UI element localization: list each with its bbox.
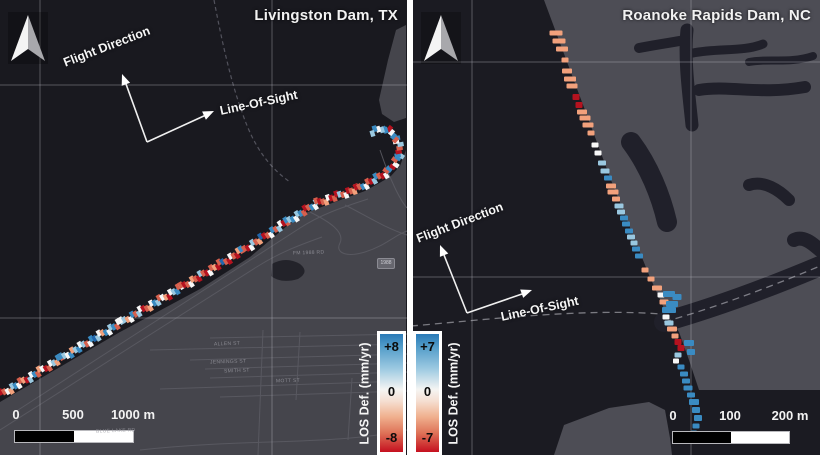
- insar-point: [595, 151, 602, 156]
- insar-point: [567, 84, 578, 89]
- panel-title: Roanoke Rapids Dam, NC: [622, 7, 811, 24]
- insar-point: [615, 204, 624, 209]
- insar-point: [627, 235, 635, 240]
- colorbar-max: +7: [413, 339, 442, 354]
- scalebar: [672, 431, 790, 444]
- insar-point: [576, 102, 583, 108]
- street-label: ALLEN ST: [214, 341, 240, 348]
- street-label: FM 1988 RD: [293, 249, 325, 256]
- insar-point: [604, 176, 612, 181]
- street-label: JENNINGS ST: [210, 358, 247, 365]
- street-label: MOTT ST: [276, 378, 300, 385]
- insar-point: [666, 301, 678, 307]
- colorbar-min: -7: [413, 430, 442, 445]
- colorbar: +7 0 -7: [413, 331, 442, 455]
- flight-direction-arrow: [126, 84, 147, 142]
- map-panel-livingston: Livingston Dam, TX Flight Direction Line…: [0, 0, 407, 455]
- insar-point: [550, 31, 563, 36]
- insar-point: [693, 424, 700, 429]
- colorbar: +8 0 -8: [377, 331, 406, 455]
- north-arrow-icon: [8, 12, 48, 64]
- insar-point: [673, 359, 679, 364]
- insar-point: [675, 339, 682, 345]
- scalebar-tick-1: 100: [719, 408, 741, 423]
- insar-point: [652, 286, 662, 291]
- insar-point: [632, 247, 640, 252]
- scalebar-white-half: [731, 432, 789, 443]
- colorbar-label: LOS Def. (mm/yr): [358, 332, 373, 456]
- colorbar-max: +8: [377, 339, 406, 354]
- figure-two-panel-insar-map: Livingston Dam, TX Flight Direction Line…: [0, 0, 820, 461]
- scalebar-tick-1: 500: [62, 407, 84, 422]
- insar-point: [562, 69, 572, 74]
- scalebar-tick-0: 0: [12, 407, 19, 422]
- insar-point: [687, 393, 695, 398]
- flight-arrowhead-icon: [122, 74, 130, 86]
- insar-point: [598, 161, 606, 166]
- map-panel-roanoke: Roanoke Rapids Dam, NC Flight Direction …: [413, 0, 820, 455]
- insar-point: [592, 143, 599, 148]
- insar-point: [694, 415, 702, 421]
- insar-point: [667, 327, 677, 332]
- insar-point: [635, 254, 643, 259]
- los-arrowhead-icon: [202, 111, 214, 120]
- insar-point: [562, 58, 569, 63]
- insar-point: [689, 399, 699, 405]
- insar-point: [573, 94, 580, 100]
- scalebar-black-half: [15, 431, 74, 442]
- insar-point: [672, 334, 679, 339]
- insar-point: [556, 47, 568, 52]
- insar-point: [580, 116, 591, 121]
- insar-point: [631, 241, 638, 246]
- flight-los-arrows: [122, 74, 214, 142]
- insar-point: [606, 184, 616, 189]
- insar-point: [601, 169, 610, 174]
- scalebar-tick-2: 1000 m: [111, 407, 155, 422]
- insar-point: [692, 407, 700, 413]
- insar-point: [553, 39, 566, 44]
- insar-point: [678, 345, 685, 351]
- los-arrowhead-icon: [520, 290, 532, 298]
- scalebar-tick-0: 0: [669, 408, 676, 423]
- insar-point: [564, 77, 576, 82]
- insar-point: [648, 277, 655, 282]
- insar-point: [583, 123, 594, 128]
- colorbar-min: -8: [377, 430, 406, 445]
- insar-point: [642, 268, 649, 273]
- land-cove: [379, 25, 406, 122]
- insar-point: [684, 340, 694, 346]
- panel-title: Livingston Dam, TX: [254, 7, 398, 24]
- line-of-sight-arrow: [147, 115, 206, 142]
- colorbar-mid: 0: [377, 384, 406, 399]
- insar-point: [617, 210, 625, 215]
- insar-point: [662, 307, 676, 313]
- street-label: SMITH ST: [224, 368, 250, 375]
- flight-arrowhead-icon: [440, 245, 448, 257]
- colorbar-mid: 0: [413, 384, 442, 399]
- insar-point: [577, 110, 587, 115]
- land-blob: [554, 402, 672, 455]
- insar-point: [663, 315, 670, 320]
- insar-point: [612, 197, 620, 202]
- insar-point: [675, 353, 682, 358]
- insar-point: [678, 365, 685, 370]
- insar-point: [625, 229, 633, 234]
- scalebar-black-half: [673, 432, 731, 443]
- scalebar-tick-2: 200 m: [772, 408, 809, 423]
- colorbar-label: LOS Def. (mm/yr): [447, 332, 462, 456]
- road-shield: 1988: [377, 258, 395, 269]
- insar-point: [684, 386, 693, 391]
- flight-los-arrows: [440, 245, 532, 313]
- insar-point: [608, 190, 619, 195]
- map-background-livingston: [0, 0, 407, 455]
- insar-point: [665, 321, 674, 326]
- insar-point: [687, 349, 695, 355]
- flight-direction-arrow: [444, 255, 467, 313]
- insar-point: [622, 222, 630, 227]
- north-arrow-icon: [421, 12, 461, 64]
- map-background-roanoke: [413, 0, 820, 455]
- insar-point: [673, 294, 682, 300]
- insar-point: [620, 216, 628, 221]
- insar-point: [680, 372, 688, 377]
- insar-point: [588, 131, 595, 136]
- insar-point: [682, 379, 690, 384]
